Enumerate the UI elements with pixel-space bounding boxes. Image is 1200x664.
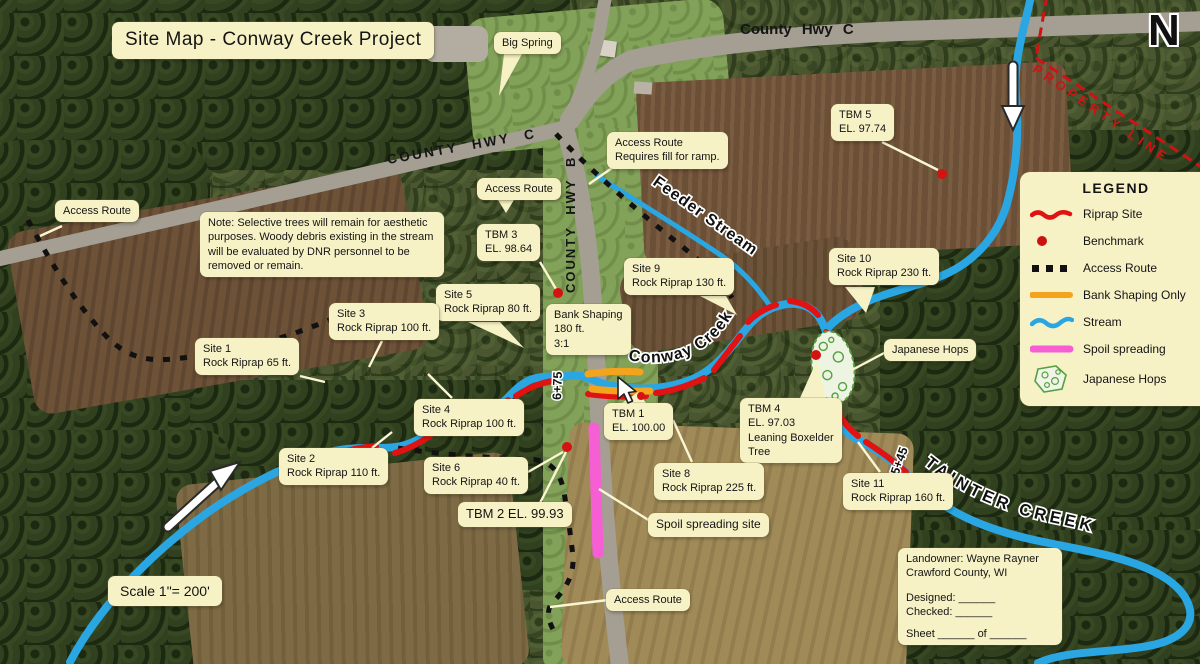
riprap-line-icon xyxy=(1030,207,1074,221)
callout-tbm-1: TBM 1EL. 100.00 xyxy=(604,403,673,440)
callout-site-10: Site 10Rock Riprap 230 ft. xyxy=(829,248,939,285)
callout-site-5: Site 5Rock Riprap 80 ft. xyxy=(436,284,540,321)
callout-spoil-site: Spoil spreading site xyxy=(648,513,769,537)
callout-access-route-top-left: Access Route xyxy=(55,200,139,222)
legend-item-access: Access Route xyxy=(1030,254,1200,281)
station-6-75: 6+75 xyxy=(550,371,565,400)
callout-access-route-ramp: Access Route Requires fill for ramp. xyxy=(607,132,728,169)
callout-tbm-5: TBM 5EL. 97.74 xyxy=(831,104,894,141)
callout-big-spring: Big Spring xyxy=(494,32,561,54)
county-hwy-c-top-label: County Hwy C xyxy=(740,21,854,38)
callout-site-1: Site 1Rock Riprap 65 ft. xyxy=(195,338,299,375)
legend-item-riprap: Riprap Site xyxy=(1030,200,1200,227)
legend-item-stream: Stream xyxy=(1030,308,1200,335)
callout-access-route-bottom: Access Route xyxy=(606,589,690,611)
note-box: Note: Selective trees will remain for ae… xyxy=(200,212,444,277)
hops-patch-icon xyxy=(1030,363,1074,395)
north-arrow: N xyxy=(1148,6,1180,56)
callout-tbm-4: TBM 4 EL. 97.03 Leaning Boxelder Tree xyxy=(740,398,842,463)
property-line-label: PROPERTY LINE xyxy=(1030,61,1173,166)
map-title: Site Map - Conway Creek Project xyxy=(112,22,434,59)
scale-box: Scale 1"= 200' xyxy=(108,576,222,606)
stream-line-icon xyxy=(1030,314,1074,330)
legend-box: LEGEND Riprap Site Benchmark Access Rout… xyxy=(1020,172,1200,406)
callout-tbm-2: TBM 2 EL. 99.93 xyxy=(458,502,572,527)
legend-item-bank-shaping: Bank Shaping Only xyxy=(1030,281,1200,308)
callout-japanese-hops: Japanese Hops xyxy=(884,339,976,361)
callout-site-8: Site 8Rock Riprap 225 ft. xyxy=(654,463,764,500)
callout-site-3: Site 3Rock Riprap 100 ft. xyxy=(329,303,439,340)
county-hwy-b-label: COUNTY HWY B xyxy=(563,156,578,293)
landowner-box: Landowner: Wayne Rayner Crawford County,… xyxy=(898,548,1062,645)
spoil-spreading-line xyxy=(594,428,598,553)
mouse-cursor xyxy=(616,376,642,406)
callout-site-4: Site 4Rock Riprap 100 ft. xyxy=(414,399,524,436)
legend-item-benchmark: Benchmark xyxy=(1030,227,1200,254)
callout-bank-shaping: Bank Shaping 180 ft. 3:1 xyxy=(546,304,631,355)
legend-item-spoil: Spoil spreading xyxy=(1030,335,1200,362)
access-dashes-icon xyxy=(1030,261,1074,275)
bank-shaping-icon xyxy=(1030,288,1074,302)
benchmark-dot-icon xyxy=(1030,234,1074,248)
callout-site-9: Site 9Rock Riprap 130 ft. xyxy=(624,258,734,295)
spoil-line-icon xyxy=(1030,342,1074,356)
callout-site-6: Site 6Rock Riprap 40 ft. xyxy=(424,457,528,494)
legend-title: LEGEND xyxy=(1030,180,1200,196)
callout-access-route-mid: Access Route xyxy=(477,178,561,200)
site-map-canvas: PROPERTY LINE xyxy=(0,0,1200,664)
legend-item-hops: Japanese Hops xyxy=(1030,362,1200,396)
callout-tbm-3: TBM 3EL. 98.64 xyxy=(477,224,540,261)
callout-site-11: Site 11Rock Riprap 160 ft. xyxy=(843,473,953,510)
callout-site-2: Site 2Rock Riprap 110 ft. xyxy=(279,448,388,485)
